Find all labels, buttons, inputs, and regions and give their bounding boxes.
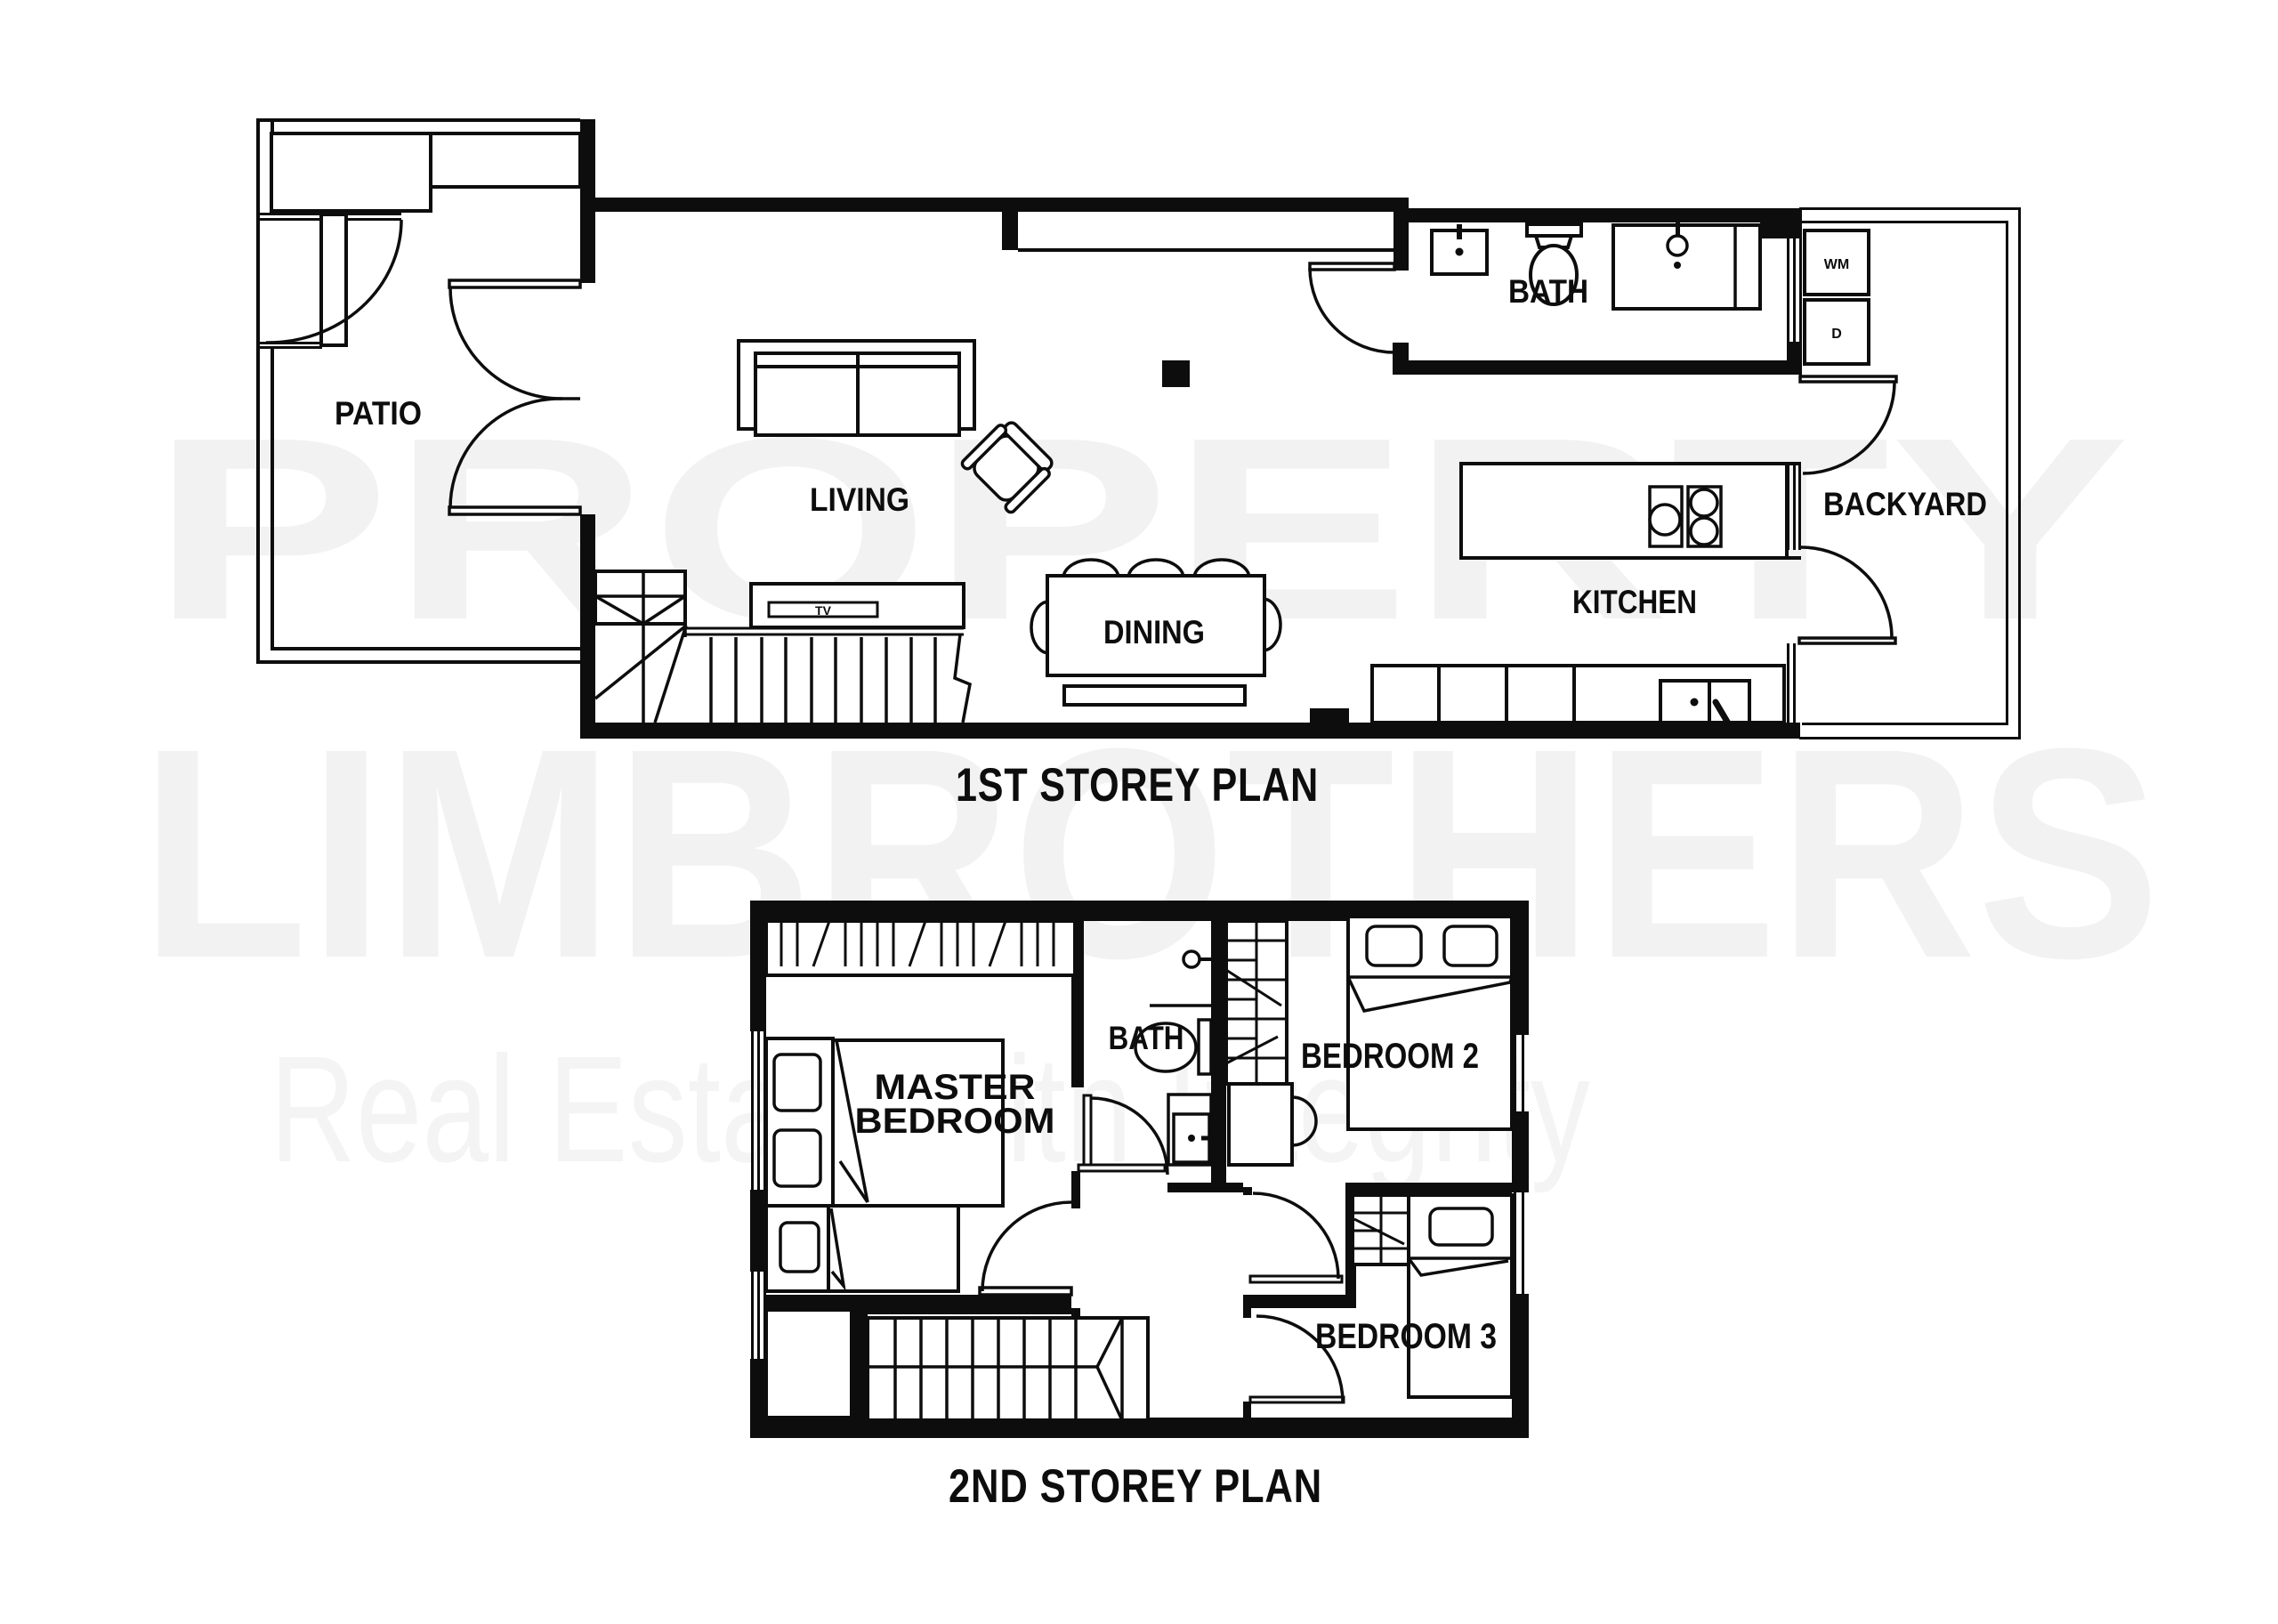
svg-text:BATH: BATH [1109, 1020, 1184, 1056]
svg-text:LIVING: LIVING [810, 481, 909, 518]
svg-text:D: D [1831, 327, 1842, 342]
svg-text:WM: WM [1824, 257, 1849, 272]
svg-text:BATH: BATH [1508, 273, 1588, 310]
svg-text:1ST STOREY PLAN: 1ST STOREY PLAN [956, 759, 1319, 812]
svg-text:KITCHEN: KITCHEN [1572, 584, 1697, 620]
svg-text:BEDROOM 2: BEDROOM 2 [1301, 1037, 1479, 1076]
svg-text:TV: TV [815, 603, 832, 618]
svg-text:BEDROOM 3: BEDROOM 3 [1315, 1317, 1497, 1356]
svg-text:BEDROOM: BEDROOM [855, 1102, 1055, 1141]
svg-text:2ND STOREY PLAN: 2ND STOREY PLAN [949, 1460, 1322, 1513]
svg-text:BACKYARD: BACKYARD [1823, 486, 1987, 522]
svg-text:DINING: DINING [1103, 614, 1205, 650]
svg-text:PATIO: PATIO [335, 395, 422, 432]
